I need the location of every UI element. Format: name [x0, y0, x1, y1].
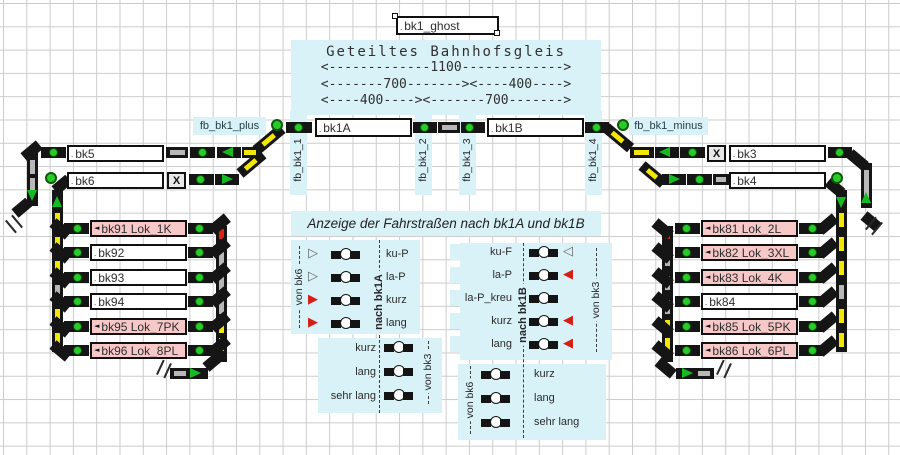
- route-arrow-icon: ◀: [563, 314, 573, 328]
- track-segment[interactable]: [680, 147, 705, 158]
- block-label: bk6: [75, 174, 94, 188]
- track-segment[interactable]: [166, 147, 188, 158]
- direction-arrow-icon: [836, 197, 846, 208]
- track-segment[interactable]: [242, 147, 260, 158]
- release-button-bk6[interactable]: X: [167, 172, 186, 189]
- occupancy-indicator-icon: [195, 322, 204, 331]
- track-segment[interactable]: [190, 147, 215, 158]
- cursor-marker-icon: .: [94, 250, 96, 259]
- route-arrow-icon: ▶: [308, 293, 318, 307]
- route-indicator[interactable]: [481, 416, 510, 429]
- occupancy-indicator-icon: [420, 123, 429, 132]
- route-label: kurz: [450, 313, 514, 329]
- block-label: bk82 Lok_3XL: [712, 246, 789, 260]
- block-label: bk5: [75, 147, 94, 161]
- track-segment[interactable]: [64, 321, 89, 332]
- feedback-contact-icon: [271, 119, 283, 131]
- block-bk81[interactable]: ◄bk81 Lok_2L: [701, 220, 798, 237]
- track-state-mark: [244, 158, 258, 171]
- route-arrow-icon: ◀: [563, 337, 573, 351]
- track-state-mark: [634, 150, 649, 155]
- track-segment[interactable]: [41, 147, 66, 158]
- occupancy-indicator-icon: [73, 248, 82, 257]
- train-marker-icon: ◄: [705, 225, 710, 232]
- route-indicator[interactable]: [331, 317, 360, 330]
- cursor-marker-icon: .: [400, 24, 402, 33]
- track-state-mark: [646, 168, 658, 180]
- route-label: sehr lang: [532, 414, 581, 430]
- route-indicator[interactable]: [331, 294, 360, 307]
- route-indicator[interactable]: [481, 392, 510, 405]
- block-label: bk96 Lok_8PL: [101, 344, 178, 358]
- train-marker-icon: ◄: [705, 323, 710, 330]
- route-arrow-icon: ▶: [308, 316, 318, 330]
- block-bk86[interactable]: ◄bk86 Lok_6PL: [701, 342, 798, 359]
- track-state-mark: [716, 177, 726, 182]
- occupancy-indicator-icon: [73, 224, 82, 233]
- route-label: ku-P: [384, 246, 411, 262]
- track-segment[interactable]: [675, 345, 700, 356]
- track-segment[interactable]: [687, 174, 712, 185]
- occupancy-indicator-icon: [682, 273, 691, 282]
- route-indicator[interactable]: [331, 248, 360, 261]
- block-bk83[interactable]: ◄bk83 Lok_4K: [701, 269, 798, 286]
- direction-arrow-icon: [222, 174, 233, 184]
- block-label: bk83 Lok_4K: [712, 271, 782, 285]
- track-state-mark: [174, 371, 186, 376]
- track-diagram: Geteiltes Bahnhofsgleis <-------------11…: [0, 0, 900, 455]
- train-marker-icon: ◄: [705, 249, 710, 256]
- fb-plus-label: fb_bk1_plus: [193, 117, 266, 135]
- direction-arrow-icon: [669, 174, 680, 184]
- dimension-total: <-------------1100------------->: [291, 60, 601, 77]
- route-indicator[interactable]: [529, 338, 558, 351]
- block-label: bk81 Lok_2L: [712, 222, 781, 236]
- direction-arrow-icon: [682, 368, 693, 378]
- route-panel-title: Anzeige der Fahrstraßen nach bk1A und bk…: [291, 211, 601, 236]
- track-segment[interactable]: [675, 247, 700, 258]
- cursor-marker-icon: .: [733, 178, 735, 187]
- route-origin-label: von bk3: [422, 351, 434, 394]
- track-state-mark: [839, 237, 844, 251]
- occupancy-indicator-icon: [49, 148, 58, 157]
- route-indicator[interactable]: [331, 271, 360, 284]
- route-label: la-P: [450, 267, 514, 283]
- occupancy-indicator-icon: [682, 346, 691, 355]
- block-bk1-ghost[interactable]: . bk1_ghost: [396, 16, 499, 35]
- route-indicator[interactable]: [529, 269, 558, 282]
- occupancy-indicator-icon: [195, 346, 204, 355]
- occupancy-indicator-icon: [198, 148, 207, 157]
- occupancy-indicator-icon: [592, 123, 601, 132]
- route-label: sehr lang: [320, 388, 378, 404]
- cursor-marker-icon: .: [71, 178, 73, 187]
- track-segment[interactable]: [461, 122, 485, 133]
- block-bk96[interactable]: ◄bk96 Lok_8PL: [90, 342, 187, 359]
- block-bk1b[interactable]: . bk1B: [487, 118, 584, 137]
- track-segment[interactable]: [189, 174, 214, 185]
- track-state-mark: [839, 213, 844, 227]
- block-bk93[interactable]: .bk93: [90, 269, 187, 286]
- track-state-mark: [864, 170, 869, 184]
- direction-arrow-icon: [222, 147, 233, 157]
- route-label: lang: [450, 336, 514, 352]
- cursor-marker-icon: .: [94, 275, 96, 284]
- buffer-stop-icon: [5, 215, 23, 234]
- occupancy-indicator-icon: [195, 248, 204, 257]
- track-state-mark: [244, 150, 256, 155]
- route-label: la-P: [384, 269, 408, 285]
- block-bk92[interactable]: .bk92: [90, 244, 187, 261]
- dimension-split-2: <----400----><-------700------->: [291, 93, 601, 110]
- train-marker-icon: ◄: [94, 225, 99, 232]
- track-segment[interactable]: [413, 122, 437, 133]
- occupancy-indicator-icon: [73, 322, 82, 331]
- track-segment[interactable]: [675, 296, 700, 307]
- track-state-mark: [839, 309, 844, 323]
- block-label: bk93: [98, 271, 124, 285]
- route-label: lang: [320, 364, 378, 380]
- block-label: bk95 Lok_7PK: [101, 320, 179, 334]
- route-label: ku-F: [450, 244, 514, 260]
- fb-contact-label-4: fb_bk1_4: [587, 138, 599, 181]
- direction-arrow-icon: [659, 147, 670, 157]
- route-origin-label: von bk3: [590, 279, 602, 322]
- block-label: bk84: [709, 295, 735, 309]
- block-label: bk85 Lok_5PK: [712, 320, 790, 334]
- track-state-mark: [839, 261, 844, 275]
- route-label: la-P_kreu: [450, 290, 514, 306]
- track-segment[interactable]: [675, 223, 700, 234]
- occupancy-indicator-icon: [73, 297, 82, 306]
- block-label: bk86 Lok_6PL: [712, 344, 789, 358]
- occupancy-indicator-icon: [682, 297, 691, 306]
- track-state-mark: [611, 131, 625, 144]
- route-label: lang: [384, 315, 409, 331]
- occupancy-indicator-icon: [73, 346, 82, 355]
- track-state-mark: [170, 150, 185, 155]
- block-label: bk1B: [495, 121, 522, 135]
- track-segment[interactable]: [170, 368, 208, 379]
- route-label: kurz: [532, 366, 557, 382]
- route-arrow-icon: ▷: [308, 247, 318, 261]
- track-segment[interactable]: [64, 296, 89, 307]
- cursor-marker-icon: .: [733, 151, 735, 160]
- route-origin-label: von bk6: [464, 379, 476, 422]
- track-segment[interactable]: [675, 272, 700, 283]
- fb-contact-label-2: fb_bk1_2: [417, 138, 429, 181]
- block-label: bk94: [98, 295, 124, 309]
- block-bk84[interactable]: .bk84: [701, 293, 798, 310]
- direction-arrow-icon: [27, 190, 37, 201]
- route-indicator[interactable]: [384, 389, 413, 402]
- direction-arrow-icon: [861, 192, 871, 203]
- occupancy-indicator-icon: [835, 148, 844, 157]
- cursor-marker-icon: .: [319, 126, 321, 135]
- track-state-mark: [442, 125, 457, 130]
- direction-arrow-icon: [190, 368, 201, 378]
- track-segment[interactable]: [630, 147, 654, 158]
- fb-minus-label: fb_bk1_minus: [629, 117, 708, 135]
- block-label: bk3: [737, 147, 756, 161]
- train-marker-icon: ◄: [94, 323, 99, 330]
- block-label: bk1_ghost: [404, 19, 459, 33]
- track-state-mark: [261, 133, 276, 146]
- selection-handle-icon[interactable]: [494, 30, 500, 36]
- occupancy-indicator-icon: [695, 175, 704, 184]
- selection-handle-icon[interactable]: [392, 13, 398, 19]
- cursor-marker-icon: .: [94, 299, 96, 308]
- block-bk94[interactable]: .bk94: [90, 293, 187, 310]
- block-bk82[interactable]: ◄bk82 Lok_3XL: [701, 244, 798, 261]
- occupancy-indicator-icon: [195, 224, 204, 233]
- track-segment[interactable]: [438, 122, 460, 133]
- station-dimension-panel: Geteiltes Bahnhofsgleis <-------------11…: [291, 40, 601, 115]
- occupancy-indicator-icon: [465, 123, 474, 132]
- cursor-marker-icon: .: [705, 299, 707, 308]
- track-state-mark: [839, 333, 844, 347]
- train-marker-icon: ◄: [705, 347, 710, 354]
- feedback-contact-icon: [617, 119, 629, 131]
- release-button-bk3[interactable]: X: [707, 145, 726, 162]
- block-bk95[interactable]: ◄bk95 Lok_7PK: [90, 318, 187, 335]
- route-origin-label: von bk6: [293, 266, 305, 309]
- track-state-mark: [698, 371, 710, 376]
- occupancy-indicator-icon: [682, 224, 691, 233]
- route-arrow-icon: ▷: [308, 270, 318, 284]
- feedback-contact-icon: [831, 172, 843, 184]
- block-bk6[interactable]: . bk6: [67, 172, 164, 189]
- cursor-marker-icon: .: [71, 151, 73, 160]
- block-label: bk4: [737, 174, 756, 188]
- occupancy-indicator-icon: [688, 148, 697, 157]
- track-segment[interactable]: [64, 272, 89, 283]
- route-arrow-icon: ◁: [563, 245, 573, 259]
- track-segment[interactable]: [64, 345, 89, 356]
- route-destination-label: nach bk1A: [373, 271, 385, 333]
- buffer-stop-icon: [716, 360, 732, 379]
- panel-title: Geteiltes Bahnhofsgleis: [291, 44, 601, 60]
- dimension-split-1: <-------700-------><----400---->: [291, 77, 601, 94]
- track-segment[interactable]: [713, 174, 729, 185]
- track-segment[interactable]: [675, 321, 700, 332]
- occupancy-indicator-icon: [294, 123, 303, 132]
- fb-contact-label-3: fb_bk1_3: [461, 138, 473, 181]
- route-label: kurz: [384, 292, 409, 308]
- block-bk85[interactable]: ◄bk85 Lok_5PK: [701, 318, 798, 335]
- track-state-mark: [30, 160, 35, 174]
- occupancy-indicator-icon: [196, 175, 205, 184]
- track-segment[interactable]: [64, 223, 89, 234]
- feedback-contact-icon: [45, 172, 57, 184]
- block-bk91[interactable]: ◄bk91 Lok_1K: [90, 220, 187, 237]
- occupancy-indicator-icon: [195, 297, 204, 306]
- block-bk3[interactable]: . bk3: [729, 145, 826, 162]
- route-label: lang: [532, 390, 557, 406]
- track-segment[interactable]: [64, 247, 89, 258]
- route-indicator[interactable]: [384, 365, 413, 378]
- route-destination-label: nach bk1B: [517, 284, 529, 346]
- occupancy-indicator-icon: [195, 273, 204, 282]
- train-marker-icon: ◄: [94, 347, 99, 354]
- fb-contact-label-1: fb_bk1_1: [292, 138, 304, 181]
- route-indicator[interactable]: [384, 341, 413, 354]
- block-bk1a[interactable]: . bk1A: [315, 118, 412, 137]
- route-indicator[interactable]: [529, 292, 558, 305]
- route-indicator[interactable]: [529, 315, 558, 328]
- track-state-mark: [839, 285, 844, 299]
- track-segment[interactable]: [286, 122, 312, 133]
- route-arrow-icon: ◀: [563, 268, 573, 282]
- block-bk5[interactable]: . bk5: [67, 145, 164, 162]
- route-indicator[interactable]: [529, 246, 558, 259]
- cursor-marker-icon: .: [491, 126, 493, 135]
- occupancy-indicator-icon: [73, 273, 82, 282]
- route-label: kurz: [320, 340, 378, 356]
- block-label: bk1A: [323, 121, 350, 135]
- direction-arrow-icon: [52, 196, 62, 207]
- block-label: bk92: [98, 246, 124, 260]
- block-label: bk91 Lok_1K: [101, 222, 171, 236]
- train-marker-icon: ◄: [705, 274, 710, 281]
- block-bk4[interactable]: . bk4: [729, 172, 826, 189]
- occupancy-indicator-icon: [682, 248, 691, 257]
- occupancy-indicator-icon: [682, 322, 691, 331]
- route-indicator[interactable]: [481, 368, 510, 381]
